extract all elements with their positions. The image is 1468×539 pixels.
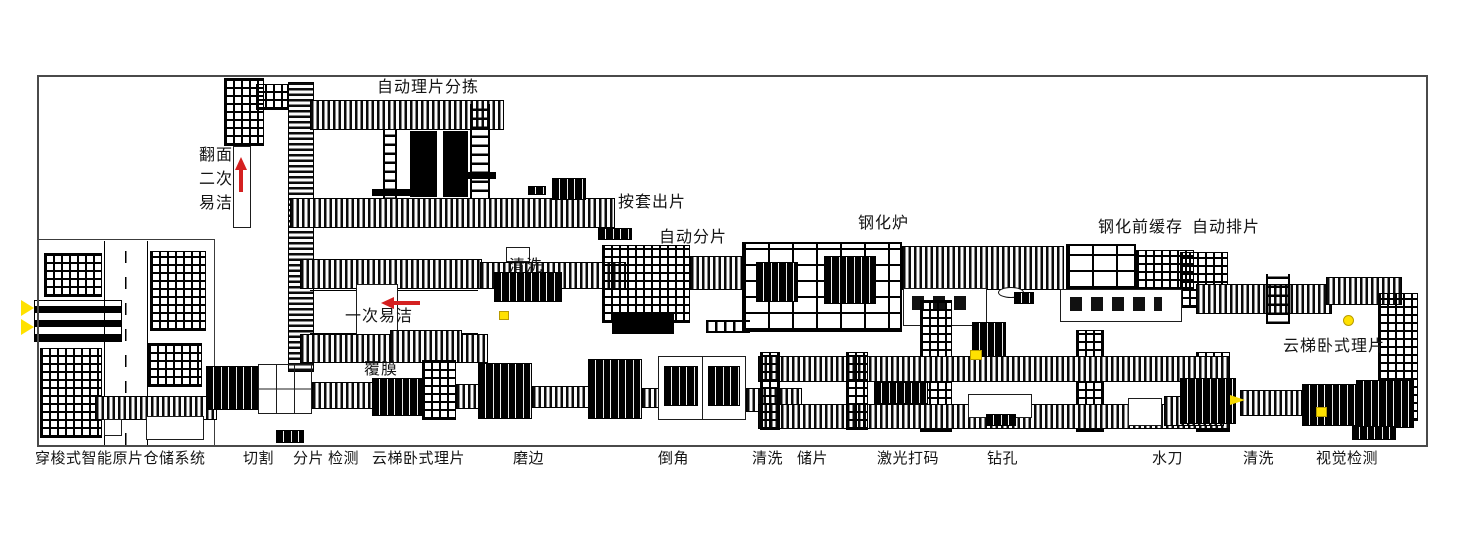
label-flip-second-easy-clean: 翻面 二次 易洁 [199, 144, 233, 216]
label-auto-arranging: 自动排片 [1192, 219, 1260, 237]
label-first-easy-clean: 一次易洁 [345, 308, 413, 326]
label-visual-inspection: 视觉检测 [1316, 451, 1378, 468]
label-film-laminating: 覆膜 [364, 361, 398, 379]
label-flip-line1: 翻面 [199, 144, 233, 168]
station-marker-icon [499, 311, 509, 320]
flip-direction-arrow-icon [235, 157, 247, 193]
label-washing-bottom-left: 清洗 [752, 451, 783, 468]
loading-point-marker-icon [21, 300, 34, 316]
label-flip-line3: 易洁 [199, 192, 233, 216]
label-drilling: 钻孔 [987, 451, 1018, 468]
label-shuttle-storage-system: 穿梭式智能原片仓储系统 [35, 451, 206, 468]
label-tempering-furnace: 钢化炉 [858, 215, 909, 233]
label-cutting: 切割 [243, 451, 274, 468]
station-marker-icon [1316, 407, 1327, 417]
label-flip-line2: 二次 [199, 168, 233, 192]
label-splitting: 分片 [293, 451, 324, 468]
label-chamfering: 倒角 [658, 451, 689, 468]
label-waterjet: 水刀 [1152, 451, 1183, 468]
station-marker-icon [1343, 315, 1354, 326]
label-washing-bottom-right: 清洗 [1243, 451, 1274, 468]
label-auto-splitting: 自动分片 [659, 229, 727, 247]
label-ladder-sorter-bottom: 云梯卧式理片 [372, 451, 465, 468]
drawing-frame [37, 75, 1428, 447]
label-sleeve-output: 按套出片 [618, 194, 686, 212]
loading-point-marker-icon [21, 319, 34, 335]
station-marker-icon [970, 350, 982, 360]
label-edging: 磨边 [513, 451, 544, 468]
label-washing-mid: 清洗 [509, 258, 543, 276]
label-sheet-buffer: 储片 [797, 451, 828, 468]
label-inspection: 检测 [328, 451, 359, 468]
label-pre-tempering-buffer: 钢化前缓存 [1098, 219, 1183, 237]
label-ladder-sorter-right: 云梯卧式理片 [1283, 338, 1385, 356]
label-laser-marking: 激光打码 [877, 451, 939, 468]
factory-layout-diagram: 自动理片分拣 翻面 二次 易洁 按套出片 自动分片 钢化炉 钢化前缓存 自动排片… [0, 0, 1468, 539]
flow-direction-marker-icon [1230, 395, 1245, 405]
label-auto-sheet-sorting: 自动理片分拣 [377, 79, 479, 97]
